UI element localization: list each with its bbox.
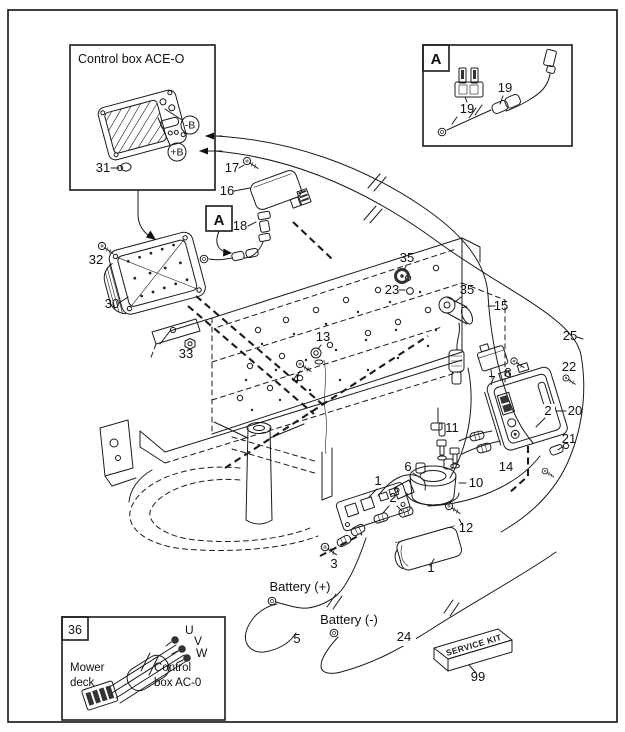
- callout-2-fuse: 2: [389, 490, 396, 505]
- callout-6: 6: [404, 459, 411, 474]
- callout-13: 13: [316, 329, 330, 344]
- callout-22: 22: [562, 359, 576, 374]
- parts-diagram-page: Control box ACE-O -B +B 31: [0, 0, 625, 732]
- callout-11: 11: [445, 420, 459, 435]
- plus-b-label: +B: [170, 147, 183, 159]
- callout-30: 30: [105, 296, 119, 311]
- callout-3: 3: [330, 556, 337, 571]
- battery-positive-cable: Battery (+) 5: [245, 538, 366, 652]
- service-kit-assembly: SERVICE KIT 99: [434, 629, 512, 684]
- key-switch-assembly: 35 23 35: [385, 250, 475, 384]
- relay-16-assembly: 17 16 18 A: [200, 157, 311, 262]
- inset-36-number: 36: [68, 623, 82, 637]
- solenoid-10-assembly: 11 10 12 6: [378, 408, 500, 535]
- fuse-holder-glyph: 19: [438, 49, 557, 136]
- callout-21: 21: [562, 431, 576, 446]
- callout-15: 15: [494, 298, 508, 313]
- phase-u-label: U: [185, 623, 194, 637]
- harness-36-inset: 36 U V W Mower deck: [62, 617, 225, 720]
- callout-1-cover: 1: [427, 560, 434, 575]
- fuse-glyph: [455, 68, 483, 97]
- diagram-canvas: Control box ACE-O -B +B 31: [0, 0, 625, 732]
- minus-b-arrow: [205, 133, 214, 140]
- callout-2-ecu: 2: [544, 403, 551, 418]
- ace-o-title: Control box ACE-O: [78, 52, 185, 66]
- callout-33: 33: [179, 346, 193, 361]
- minus-b-label: -B: [185, 120, 196, 132]
- bolt-13-assembly: 13 4: [292, 329, 330, 454]
- control-box-ac0-label-2: box AC-0: [154, 677, 201, 689]
- callout-14: 14: [499, 459, 513, 474]
- callout-99: 99: [471, 669, 485, 684]
- wire-harness-15: [215, 136, 533, 443]
- plus-b-arrow: [199, 148, 208, 155]
- battery-negative-cable: Battery (-) 24: [320, 552, 556, 673]
- callout-23: 23: [385, 282, 399, 297]
- control-box-ac0-label-1: Control: [154, 662, 191, 674]
- detail-a-marker-arrow: [223, 249, 232, 257]
- detail-a-marker-label: A: [214, 212, 225, 229]
- control-box-ace-o-inset: Control box ACE-O -B +B 31: [70, 45, 222, 240]
- callout-1-bracket: 1: [374, 473, 381, 488]
- caster-assembly: [100, 420, 318, 550]
- callout-20: 20: [568, 403, 582, 418]
- battery-negative-label: Battery (-): [320, 612, 378, 627]
- callout-5: 5: [293, 631, 300, 646]
- callout-35-switch: 35: [460, 282, 474, 297]
- battery-positive-label: Battery (+): [269, 579, 330, 594]
- callout-32: 32: [89, 252, 103, 267]
- callout-35-grommet: 35: [400, 250, 414, 265]
- detail-a-inset: A 19 19: [423, 45, 572, 146]
- detail-a-inset-label: A: [431, 51, 442, 68]
- callout-25: 25: [563, 328, 577, 343]
- callout-24: 24: [397, 629, 411, 644]
- mower-deck-label-2: deck: [70, 677, 95, 689]
- callout-16: 16: [220, 183, 234, 198]
- page-border: [8, 10, 617, 722]
- callout-17: 17: [225, 160, 239, 175]
- callout-19-holder: 19: [498, 80, 512, 95]
- callout-10: 10: [469, 475, 483, 490]
- callout-31: 31: [96, 160, 110, 175]
- inset-to-box30-arrow: [146, 231, 156, 241]
- phase-w-label: W: [196, 646, 208, 660]
- callout-18: 18: [233, 218, 247, 233]
- fuse-bracket-assembly: 1 2 3 1: [320, 473, 463, 575]
- mower-deck-label-1: Mower: [70, 662, 105, 674]
